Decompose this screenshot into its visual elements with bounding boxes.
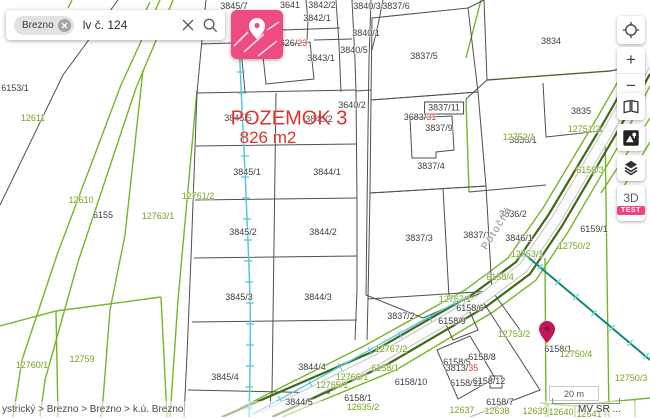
basemap-icon bbox=[619, 126, 643, 150]
basemap-button[interactable] bbox=[617, 124, 645, 151]
attribution: MV SR ... bbox=[578, 404, 621, 415]
zoom-in-button[interactable]: + bbox=[617, 47, 645, 74]
locate-icon bbox=[619, 18, 643, 42]
clear-search-icon[interactable] bbox=[177, 14, 199, 36]
search-input[interactable] bbox=[81, 17, 177, 33]
marker-tool-icon bbox=[231, 10, 283, 59]
marker-tool-button[interactable] bbox=[231, 10, 283, 59]
cadastral-map bbox=[0, 0, 650, 417]
pipeline-teal bbox=[522, 252, 650, 360]
test-badge: TEST bbox=[617, 206, 645, 215]
mode-3d-label: 3D bbox=[623, 190, 638, 206]
pipeline-cyan bbox=[235, 16, 470, 417]
search-icon[interactable] bbox=[199, 14, 221, 36]
chip-remove-icon[interactable] bbox=[58, 19, 71, 32]
layers-icon bbox=[619, 156, 643, 180]
compare-button[interactable] bbox=[617, 93, 645, 120]
highlight-parcel-area: 826 m2 bbox=[240, 128, 297, 148]
map-viewport[interactable]: 3845/736413842/23842/13840/33837/63840/1… bbox=[0, 0, 650, 417]
breadcrumb[interactable]: ystrický > Brezno > Brezno > k.ú. Brezno bbox=[2, 404, 183, 415]
search-chip-label: Brezno bbox=[22, 20, 54, 31]
layers-button[interactable] bbox=[617, 155, 645, 181]
search-chip[interactable]: Brezno bbox=[14, 16, 74, 35]
search-bar[interactable]: Brezno bbox=[6, 10, 225, 40]
map-pin-marker[interactable] bbox=[539, 321, 555, 343]
locate-button[interactable] bbox=[617, 16, 645, 44]
mode-3d-button[interactable]: 3D TEST bbox=[617, 185, 645, 221]
compare-icon bbox=[619, 95, 643, 119]
